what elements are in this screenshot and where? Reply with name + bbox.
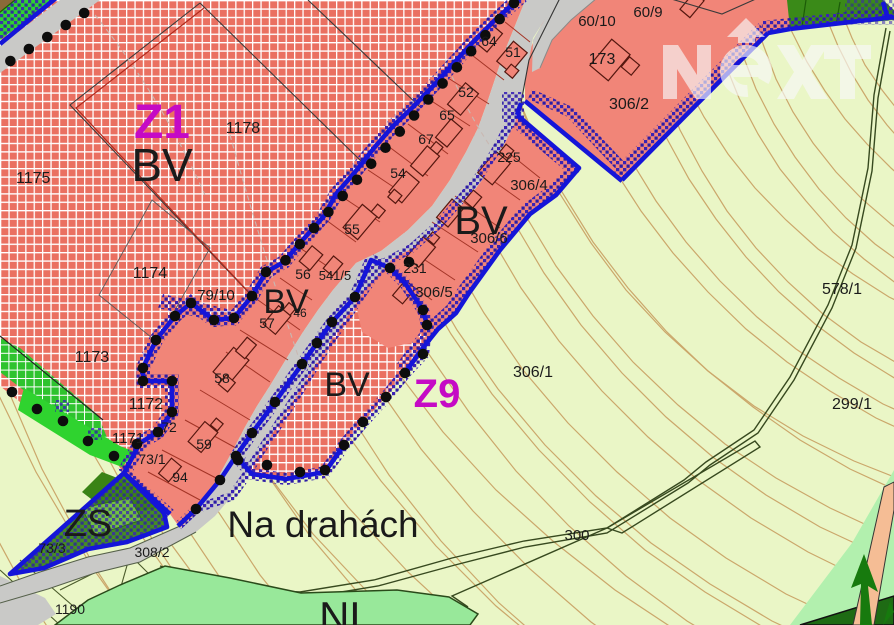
- svg-text:1175: 1175: [16, 170, 51, 187]
- svg-text:ZS: ZS: [64, 503, 113, 545]
- svg-text:64: 64: [481, 33, 497, 49]
- svg-text:46: 46: [293, 306, 307, 320]
- svg-text:1178: 1178: [226, 120, 261, 137]
- svg-text:67: 67: [418, 131, 434, 147]
- svg-text:NL: NL: [319, 593, 373, 625]
- svg-text:308/2: 308/2: [134, 544, 169, 560]
- svg-text:BV: BV: [131, 139, 193, 191]
- svg-text:306/4: 306/4: [510, 177, 548, 194]
- svg-text:60/9: 60/9: [633, 4, 662, 21]
- svg-text:57: 57: [259, 315, 275, 331]
- svg-text:72: 72: [161, 419, 177, 435]
- svg-text:299/1: 299/1: [832, 396, 872, 413]
- svg-text:51: 51: [505, 44, 521, 60]
- svg-text:Z9: Z9: [414, 372, 461, 416]
- svg-text:BV: BV: [324, 366, 370, 404]
- svg-text:52: 52: [458, 84, 474, 100]
- svg-text:73/3: 73/3: [38, 540, 65, 556]
- svg-text:1172: 1172: [129, 396, 164, 413]
- svg-text:306/6: 306/6: [470, 230, 508, 247]
- svg-text:65: 65: [439, 107, 455, 123]
- svg-text:300: 300: [564, 527, 589, 544]
- svg-text:1174: 1174: [133, 265, 168, 282]
- svg-text:173: 173: [589, 51, 616, 68]
- svg-text:231: 231: [403, 260, 427, 276]
- svg-text:541/5: 541/5: [319, 268, 352, 283]
- svg-text:58: 58: [214, 370, 230, 386]
- svg-text:56: 56: [295, 266, 311, 282]
- svg-text:55: 55: [344, 221, 360, 237]
- svg-text:54: 54: [390, 165, 406, 181]
- svg-text:79/10: 79/10: [197, 287, 235, 304]
- svg-text:306/2: 306/2: [609, 96, 649, 113]
- svg-text:578/1: 578/1: [822, 281, 862, 298]
- svg-text:1190: 1190: [55, 601, 85, 617]
- svg-text:1173: 1173: [75, 349, 110, 366]
- svg-text:73/1: 73/1: [138, 451, 165, 467]
- svg-text:306/1: 306/1: [513, 364, 553, 381]
- svg-text:94: 94: [172, 469, 188, 485]
- svg-text:225: 225: [497, 149, 521, 165]
- svg-text:306/5: 306/5: [415, 284, 453, 301]
- svg-text:1171: 1171: [112, 430, 144, 447]
- svg-text:59: 59: [196, 436, 212, 452]
- svg-text:Na drahách: Na drahách: [227, 504, 418, 545]
- svg-text:60/10: 60/10: [578, 13, 616, 30]
